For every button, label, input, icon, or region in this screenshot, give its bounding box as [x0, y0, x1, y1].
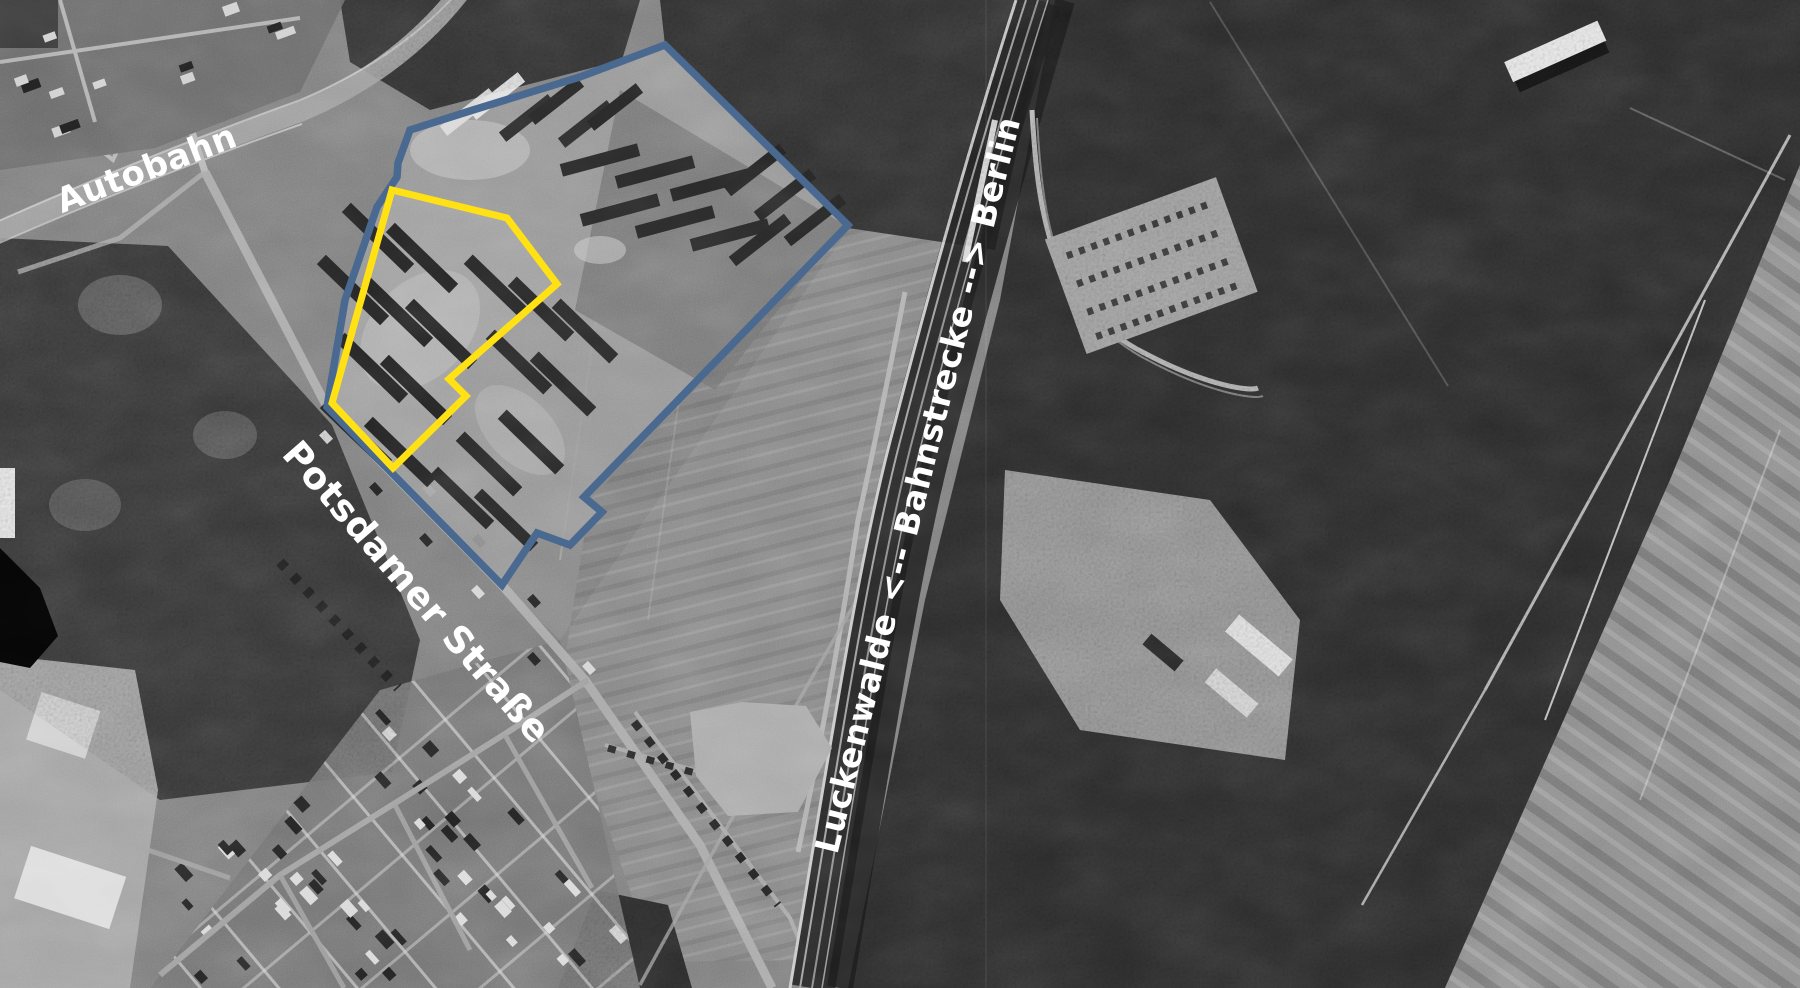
annotated-aerial-map: Autobahn Potsdamer Straße Luckenwalde <-…	[0, 0, 1800, 988]
